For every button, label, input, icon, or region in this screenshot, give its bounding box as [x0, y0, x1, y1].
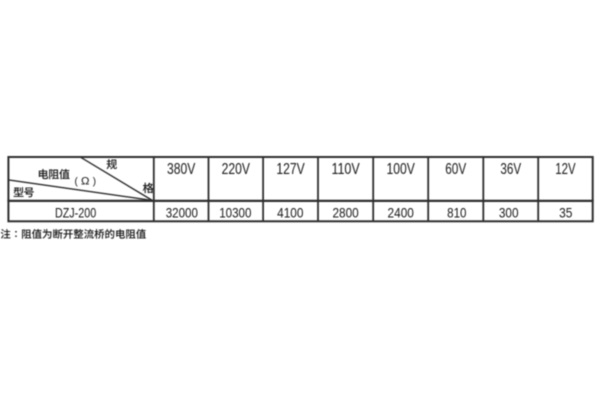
svg-text:2400: 2400	[388, 205, 414, 221]
svg-text:220V: 220V	[222, 161, 251, 178]
svg-text:810: 810	[447, 205, 466, 221]
svg-text:Ω: Ω	[81, 176, 89, 188]
svg-text:36V: 36V	[500, 161, 521, 178]
svg-text:32000: 32000	[166, 205, 198, 221]
svg-text:35: 35	[559, 205, 572, 221]
svg-text:110V: 110V	[331, 161, 360, 178]
svg-text:100V: 100V	[387, 161, 416, 178]
svg-text:60V: 60V	[445, 161, 466, 178]
svg-text:DZJ-200: DZJ-200	[55, 205, 96, 221]
svg-text:12V: 12V	[555, 161, 576, 178]
svg-text:380V: 380V	[167, 161, 196, 178]
svg-text:300: 300	[499, 205, 519, 221]
svg-text:4100: 4100	[277, 205, 303, 221]
svg-text:2800: 2800	[332, 205, 358, 221]
svg-text:10300: 10300	[219, 205, 251, 221]
svg-text:): )	[93, 176, 96, 187]
svg-text:127V: 127V	[276, 161, 305, 178]
